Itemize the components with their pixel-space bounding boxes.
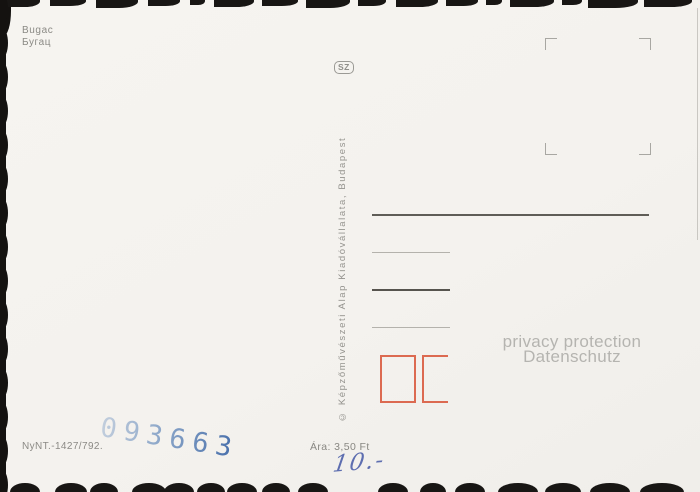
privacy-watermark: privacy protection Datenschutz bbox=[488, 334, 656, 364]
bottom-scan-edge-blob bbox=[132, 483, 166, 492]
bottom-scan-edge-blob bbox=[640, 483, 684, 492]
top-scan-edge-blob bbox=[562, 0, 582, 5]
left-scan-edge-wave bbox=[0, 164, 8, 194]
address-line-4 bbox=[372, 327, 450, 328]
top-scan-edge-blob bbox=[396, 0, 438, 7]
postcard-back-scan: Bugac Бугац SZ © Képzőművészeti Alap Kia… bbox=[0, 0, 700, 492]
stamp-corner-bottom-left-icon bbox=[545, 143, 557, 155]
left-scan-edge-wave bbox=[0, 62, 8, 92]
left-scan-edge-wave bbox=[0, 368, 8, 398]
bottom-scan-edge-blob bbox=[378, 483, 408, 492]
bottom-scan-edge-blob bbox=[590, 483, 630, 492]
right-scan-edge-line bbox=[697, 8, 698, 240]
bottom-scan-edge-blob bbox=[10, 483, 40, 492]
top-scan-edge-blob bbox=[6, 0, 40, 7]
top-scan-edge-blob bbox=[306, 0, 350, 8]
bottom-scan-edge-blob bbox=[55, 483, 87, 492]
address-line-2 bbox=[372, 252, 450, 253]
stamp-corner-top-right-icon bbox=[639, 38, 651, 50]
print-order-number: NyNT.-1427/792. bbox=[22, 441, 103, 452]
address-line-1 bbox=[372, 214, 649, 216]
postal-code-box-1 bbox=[380, 355, 416, 403]
bottom-scan-edge-blob bbox=[298, 483, 328, 492]
caption-title: Bugac bbox=[22, 25, 53, 36]
top-scan-edge-blob bbox=[214, 0, 254, 7]
left-scan-edge-wave bbox=[0, 266, 8, 296]
publisher-copyright-vertical-text: © Képzőművészeti Alap Kiadóvállalata, Bu… bbox=[336, 84, 350, 422]
top-scan-edge-blob bbox=[50, 0, 86, 6]
bottom-scan-edge-blob bbox=[227, 483, 257, 492]
top-scan-edge-blob bbox=[190, 0, 205, 5]
top-scan-edge-blob bbox=[96, 0, 138, 8]
stamp-corner-top-left-icon bbox=[545, 38, 557, 50]
address-line-3 bbox=[372, 289, 450, 291]
top-scan-edge-blob bbox=[358, 0, 386, 6]
caption-title-cyrillic: Бугац bbox=[22, 37, 51, 48]
left-scan-edge-wave bbox=[0, 198, 8, 228]
left-scan-edge-wave bbox=[0, 130, 8, 160]
left-scan-edge-wave bbox=[0, 96, 8, 126]
top-scan-edge-blob bbox=[588, 0, 638, 8]
left-scan-edge-wave bbox=[0, 402, 8, 432]
bottom-scan-edge-blob bbox=[164, 483, 194, 492]
left-scan-edge-wave bbox=[0, 232, 8, 262]
bottom-scan-edge-blob bbox=[545, 483, 581, 492]
bottom-scan-edge-blob bbox=[197, 483, 225, 492]
bottom-scan-edge-blob bbox=[262, 483, 290, 492]
top-scan-edge-blob bbox=[510, 0, 554, 7]
bottom-scan-edge-blob bbox=[90, 483, 118, 492]
handwritten-price: 10.- bbox=[331, 447, 387, 478]
top-scan-edge-blob bbox=[644, 0, 692, 7]
bottom-scan-edge-blob bbox=[420, 483, 446, 492]
left-scan-edge-wave bbox=[0, 470, 8, 492]
top-scan-edge-blob bbox=[262, 0, 298, 6]
top-scan-edge-blob bbox=[486, 0, 502, 5]
stamp-corner-bottom-right-icon bbox=[639, 143, 651, 155]
left-scan-edge-wave bbox=[0, 436, 8, 466]
bottom-scan-edge-blob bbox=[455, 483, 485, 492]
privacy-watermark-line2: Datenschutz bbox=[488, 349, 656, 364]
top-scan-edge-blob bbox=[446, 0, 478, 6]
top-scan-edge-blob bbox=[148, 0, 180, 6]
left-scan-edge-wave bbox=[0, 300, 8, 330]
postal-code-box-2 bbox=[422, 355, 448, 403]
bottom-scan-edge-blob bbox=[498, 483, 538, 492]
series-mark-badge: SZ bbox=[334, 61, 354, 74]
left-scan-edge-wave bbox=[0, 334, 8, 364]
control-stamp-number: 093663 bbox=[98, 412, 241, 464]
